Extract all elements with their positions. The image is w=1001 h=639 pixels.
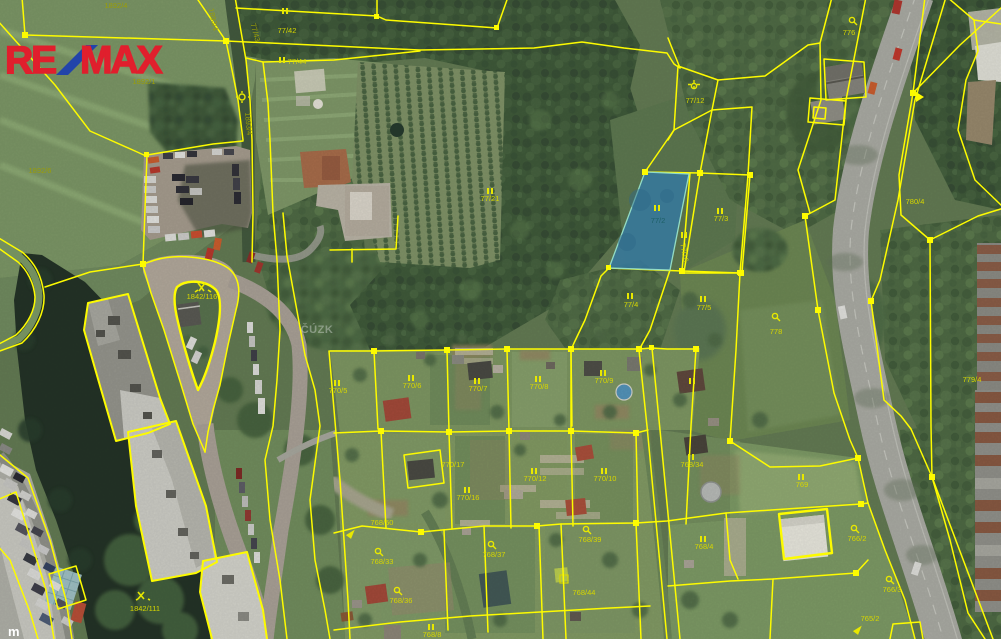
svg-text:779/4: 779/4 (963, 375, 982, 384)
svg-text:770/16: 770/16 (457, 493, 480, 502)
svg-text:768/50: 768/50 (371, 518, 394, 527)
svg-text:77/44: 77/44 (288, 57, 307, 66)
svg-text:77/42: 77/42 (278, 26, 297, 35)
svg-text:77/5: 77/5 (697, 303, 712, 312)
svg-text:1892/4: 1892/4 (105, 1, 128, 10)
svg-text:770/12: 770/12 (524, 474, 547, 483)
svg-text:778: 778 (770, 327, 783, 336)
svg-text:768/33: 768/33 (371, 557, 394, 566)
svg-text:776: 776 (843, 28, 856, 37)
svg-text:1892/6: 1892/6 (29, 166, 52, 175)
svg-text:768/44: 768/44 (573, 588, 596, 597)
svg-text:766/2: 766/2 (848, 534, 867, 543)
svg-text:77/3: 77/3 (714, 214, 729, 223)
svg-text:MAX: MAX (80, 39, 163, 82)
svg-text:ČÚZK: ČÚZK (301, 323, 334, 336)
svg-text:1842/116: 1842/116 (187, 292, 218, 301)
svg-text:77/4: 77/4 (624, 300, 639, 309)
svg-text:766/3: 766/3 (883, 585, 902, 594)
svg-text:770/17: 770/17 (442, 460, 465, 469)
svg-text:770/5: 770/5 (329, 386, 348, 395)
svg-text:765/2: 765/2 (861, 614, 880, 623)
svg-text:1842/111: 1842/111 (130, 604, 160, 613)
svg-text:m: m (8, 624, 20, 639)
svg-text:770/9: 770/9 (595, 376, 614, 385)
svg-text:780/4: 780/4 (906, 197, 925, 206)
svg-text:769: 769 (796, 480, 809, 489)
svg-text:770/8: 770/8 (530, 382, 549, 391)
svg-text:77/2: 77/2 (651, 216, 666, 225)
svg-text:768/36: 768/36 (390, 596, 413, 605)
svg-text:768/37: 768/37 (483, 550, 506, 559)
svg-text:768/4: 768/4 (695, 542, 714, 551)
svg-text:768/34: 768/34 (681, 460, 704, 469)
svg-text:77/21: 77/21 (481, 194, 500, 203)
svg-text:77/12: 77/12 (686, 96, 705, 105)
svg-text:770/6: 770/6 (403, 381, 422, 390)
svg-text:770/7: 770/7 (469, 384, 488, 393)
svg-text:770/10: 770/10 (594, 474, 617, 483)
svg-text:768/8: 768/8 (423, 630, 442, 639)
svg-text:RE: RE (5, 39, 56, 82)
svg-text:768/39: 768/39 (579, 535, 602, 544)
